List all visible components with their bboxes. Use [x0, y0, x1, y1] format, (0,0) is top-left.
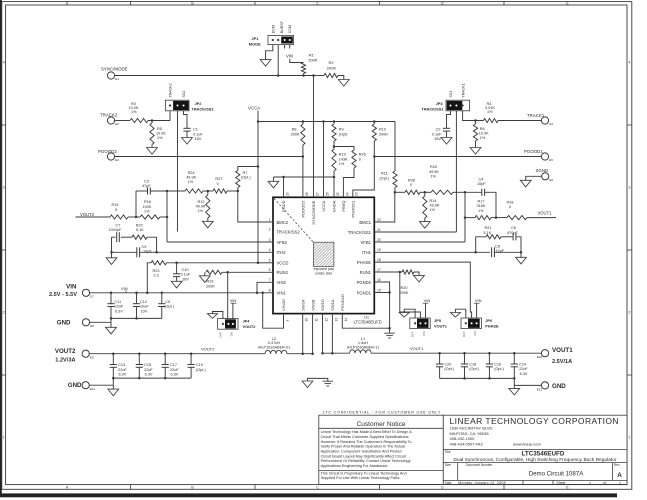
svg-text:10: 10	[305, 318, 309, 322]
svg-text:C3: C3	[144, 180, 149, 184]
svg-text:VOUT2: VOUT2	[243, 324, 257, 329]
svg-text:0.47uH: 0.47uH	[268, 341, 281, 345]
svg-text:TRACK1: TRACK1	[461, 83, 465, 97]
svg-text:C4: C4	[479, 178, 484, 182]
svg-text:200K: 200K	[308, 57, 318, 62]
svg-text:49.9K: 49.9K	[186, 176, 196, 180]
svg-text:1: 1	[589, 481, 591, 485]
svg-text:1: 1	[628, 436, 630, 440]
svg-text:1: 1	[3, 436, 5, 440]
svg-text:R27: R27	[215, 177, 222, 181]
svg-text:R13: R13	[339, 153, 346, 157]
svg-text:SW2A: SW2A	[300, 299, 305, 311]
svg-text:0: 0	[359, 157, 361, 161]
svg-text:17: 17	[377, 268, 381, 272]
svg-text:470pF: 470pF	[507, 231, 518, 235]
svg-text:VCCA: VCCA	[321, 200, 326, 211]
svg-text:(Opt.): (Opt.)	[494, 367, 504, 371]
svg-text:2.5V - 5.5V: 2.5V - 5.5V	[49, 292, 77, 298]
svg-text:143K: 143K	[339, 157, 348, 161]
svg-text:E11: E11	[90, 387, 95, 391]
svg-text:9: 9	[285, 320, 289, 322]
svg-text:VOUT1: VOUT1	[410, 346, 424, 351]
svg-text:VIN: VIN	[286, 54, 293, 59]
svg-text:ITH2: ITH2	[277, 250, 287, 255]
svg-text:3: 3	[269, 238, 271, 242]
svg-text:1%: 1%	[339, 162, 345, 166]
svg-text:408-434-0507 FAX: 408-434-0507 FAX	[450, 441, 484, 446]
svg-text:Circuit Board Layout May Signi: Circuit Board Layout May Significantly A…	[321, 454, 407, 458]
svg-text:ITH1: ITH1	[362, 250, 372, 255]
svg-text:0: 0	[115, 208, 117, 212]
svg-text:408-432-1900: 408-432-1900	[450, 436, 476, 441]
svg-text:3: 3	[3, 186, 5, 190]
svg-text:8: 8	[269, 289, 271, 293]
svg-text:C12: C12	[140, 300, 147, 304]
svg-text:R7: R7	[243, 171, 248, 175]
svg-text:ON: ON	[473, 331, 477, 335]
svg-text:PGOOD2: PGOOD2	[301, 200, 306, 218]
svg-text:R26: R26	[359, 153, 366, 157]
svg-text:IHLP1616ABER-11: IHLP1616ABER-11	[347, 346, 379, 350]
svg-text:22: 22	[377, 218, 381, 222]
svg-text:1.5uH: 1.5uH	[358, 341, 368, 345]
svg-text:PGND2: PGND2	[357, 280, 372, 285]
svg-text:3: 3	[628, 186, 630, 190]
svg-text:TRACK1: TRACK1	[527, 113, 545, 118]
svg-text:E4: E4	[115, 158, 119, 162]
svg-text:OFF: OFF	[411, 331, 415, 337]
svg-text:IHLP1616ABER-01: IHLP1616ABER-01	[258, 346, 291, 350]
svg-text:Supplied For Use With Linear T: Supplied For Use With Linear Technology …	[321, 476, 401, 480]
svg-text:L2: L2	[272, 337, 276, 341]
svg-text:C10: C10	[182, 268, 189, 272]
svg-text:R12: R12	[198, 200, 205, 204]
svg-text:R11: R11	[381, 172, 388, 176]
svg-text:PHASE: PHASE	[357, 260, 371, 265]
svg-text:FREQ: FREQ	[341, 201, 346, 212]
svg-text:26: 26	[325, 192, 329, 196]
svg-text:R9: R9	[339, 128, 344, 132]
svg-text:4: 4	[269, 248, 271, 252]
svg-text:5.1K: 5.1K	[484, 231, 492, 235]
svg-text:TRACK/SS1: TRACK/SS1	[348, 230, 372, 235]
svg-text:VOUT1: VOUT1	[434, 323, 448, 328]
svg-text:SYNC/MODE: SYNC/MODE	[101, 67, 128, 72]
svg-text:16V: 16V	[182, 277, 189, 281]
svg-text:OFF: OFF	[462, 331, 466, 337]
svg-text:C13: C13	[118, 363, 125, 367]
svg-text:316K: 316K	[477, 204, 486, 208]
svg-text:13: 13	[334, 318, 338, 322]
svg-text:1%: 1%	[487, 110, 493, 114]
svg-text:C16: C16	[494, 362, 501, 366]
svg-text:CCM: CCM	[288, 25, 292, 33]
svg-text:49.9K: 49.9K	[429, 170, 439, 174]
svg-text:0.1uF: 0.1uF	[181, 273, 191, 277]
svg-text:R8: R8	[292, 128, 297, 132]
svg-text:25: 25	[336, 192, 340, 196]
svg-text:BURST: BURST	[280, 20, 284, 33]
svg-text:R17: R17	[478, 200, 485, 204]
svg-text:(Opt.): (Opt.)	[380, 176, 390, 180]
svg-text:Application. Component Substit: Application. Component Substitution And …	[321, 450, 402, 454]
svg-text:C14: C14	[519, 362, 526, 366]
svg-text:E3: E3	[549, 122, 553, 126]
svg-text:GND: GND	[57, 319, 71, 326]
svg-text:SYNC/MODE: SYNC/MODE	[311, 200, 316, 225]
svg-text:Applications Engineering For A: Applications Engineering For Assistance.	[321, 464, 389, 468]
svg-text:(Opt.): (Opt.)	[164, 305, 174, 309]
svg-text:C11: C11	[115, 300, 122, 304]
svg-text:GND: GND	[552, 383, 566, 390]
svg-text:28: 28	[305, 192, 309, 196]
svg-text:E12: E12	[537, 387, 543, 391]
svg-text:Document Number: Document Number	[466, 463, 494, 467]
svg-text:TRACK/SS2: TRACK/SS2	[277, 229, 301, 234]
svg-text:VFB2: VFB2	[277, 240, 288, 245]
svg-text:PHASE: PHASE	[485, 323, 499, 328]
svg-text:TRACK/SS1: TRACK/SS1	[421, 106, 444, 111]
svg-text:47pF: 47pF	[142, 184, 151, 188]
svg-text:2: 2	[269, 227, 271, 231]
svg-text:ON: ON	[422, 331, 426, 335]
svg-text:15: 15	[377, 288, 381, 292]
svg-text:E1: E1	[115, 77, 119, 81]
svg-text:PGND1D: PGND1D	[340, 294, 345, 311]
svg-text:C2: C2	[436, 128, 441, 132]
svg-text:VIN2: VIN2	[277, 280, 287, 285]
svg-text:C7: C7	[116, 223, 121, 227]
svg-text:1%: 1%	[157, 136, 163, 140]
svg-text:GNDD: GNDD	[281, 200, 286, 212]
svg-text:10uF: 10uF	[140, 305, 149, 309]
svg-text:L1: L1	[361, 337, 365, 341]
svg-text:Title: Title	[445, 450, 451, 454]
svg-text:24: 24	[345, 192, 349, 196]
svg-text:MODE: MODE	[249, 41, 261, 46]
svg-text:JP5: JP5	[434, 318, 442, 323]
svg-text:R10: R10	[379, 128, 386, 132]
svg-text:Dual Synchronous, Configurable: Dual Synchronous, Configurable, High Swi…	[453, 457, 617, 463]
svg-text:TRACK/SS2: TRACK/SS2	[192, 106, 215, 111]
svg-text:10pF: 10pF	[477, 182, 486, 186]
svg-text:VFB1: VFB1	[361, 240, 372, 245]
svg-text:19: 19	[377, 248, 381, 252]
svg-text:49.9K: 49.9K	[196, 204, 206, 208]
svg-text:6.3V: 6.3V	[171, 373, 179, 377]
svg-text:R25: R25	[430, 165, 437, 169]
svg-text:VOUT1: VOUT1	[538, 210, 553, 215]
svg-text:However, It Remains The Custom: However, It Remains The Customer's Respo…	[321, 440, 412, 444]
svg-text:RUN1: RUN1	[360, 270, 372, 275]
svg-text:BMC2: BMC2	[277, 220, 289, 225]
svg-text:7: 7	[269, 278, 271, 282]
svg-text:12: 12	[324, 318, 328, 322]
svg-text:21: 21	[377, 228, 381, 232]
svg-text:1%: 1%	[188, 180, 194, 184]
svg-text:Performance Or Reliability. Co: Performance Or Reliability. Contact Line…	[321, 459, 411, 463]
svg-text:C5: C5	[165, 300, 170, 304]
svg-text:R23: R23	[153, 269, 160, 273]
svg-text:(Opt.): (Opt.)	[241, 175, 251, 179]
svg-text:R28: R28	[408, 179, 415, 183]
svg-text:(Opt): (Opt)	[339, 133, 348, 137]
svg-text:VIN: VIN	[121, 286, 128, 291]
svg-text:LTC CONFIDENTIAL - FOR CUSTOME: LTC CONFIDENTIAL - FOR CUSTOMER USE ONLY	[323, 411, 441, 415]
svg-text:1: 1	[269, 218, 271, 222]
svg-text:2: 2	[628, 311, 630, 315]
svg-text:SGND: SGND	[536, 168, 549, 173]
svg-text:27: 27	[315, 192, 319, 196]
svg-text:Customer Notice: Customer Notice	[356, 421, 405, 428]
svg-text:VOUT2: VOUT2	[80, 212, 95, 217]
svg-text:PGOOD2: PGOOD2	[98, 149, 117, 154]
svg-text:C9: C9	[142, 245, 147, 249]
svg-text:VCCD: VCCD	[277, 261, 289, 266]
svg-text:1.2V/3A: 1.2V/3A	[55, 357, 75, 363]
svg-text:ON: ON	[230, 332, 234, 336]
svg-text:This Circuit Is Proprietary To: This Circuit Is Proprietary To Linear Te…	[321, 471, 407, 475]
svg-text:0: 0	[217, 182, 219, 186]
svg-text:R6: R6	[480, 127, 485, 131]
svg-text:0.1uF: 0.1uF	[432, 132, 442, 136]
svg-text:DCM: DCM	[272, 25, 276, 33]
svg-text:LINEAR TECHNOLOGY CORPORATION: LINEAR TECHNOLOGY CORPORATION	[450, 416, 619, 426]
svg-text:11: 11	[315, 318, 319, 322]
svg-text:16: 16	[377, 278, 381, 282]
svg-text:E8: E8	[90, 324, 94, 328]
svg-text:Monday, January 12, 2009: Monday, January 12, 2009	[458, 481, 506, 485]
svg-text:10.0K: 10.0K	[156, 132, 166, 136]
svg-text:VIN1: VIN1	[277, 291, 287, 296]
svg-text:5: 5	[269, 259, 271, 263]
svg-text:VIN: VIN	[424, 298, 431, 303]
svg-text:R5: R5	[157, 127, 162, 131]
svg-text:SS1: SS1	[449, 91, 453, 98]
svg-text:10V: 10V	[141, 309, 148, 313]
svg-text:LTC3546EUFD: LTC3546EUFD	[522, 451, 565, 458]
svg-text:200K: 200K	[379, 133, 388, 137]
svg-text:1%: 1%	[131, 110, 137, 114]
svg-text:16V: 16V	[195, 137, 202, 141]
svg-text:of: of	[603, 481, 606, 485]
svg-text:RUN2: RUN2	[277, 270, 289, 275]
svg-text:29: 29	[285, 192, 289, 196]
svg-text:E9: E9	[90, 355, 94, 359]
svg-text:1%: 1%	[480, 136, 486, 140]
svg-text:10.0K: 10.0K	[479, 132, 489, 136]
svg-text:VOUT2: VOUT2	[201, 347, 215, 352]
svg-text:E7: E7	[90, 295, 94, 299]
svg-text:E2: E2	[115, 122, 119, 126]
svg-text:Date:: Date:	[445, 481, 453, 485]
svg-text:200K: 200K	[400, 291, 409, 295]
svg-text:SS2: SS2	[182, 91, 186, 98]
svg-text:0: 0	[509, 205, 511, 209]
svg-text:6.3V: 6.3V	[115, 309, 123, 313]
svg-text:22uF: 22uF	[144, 368, 153, 372]
svg-text:10pF: 10pF	[496, 249, 505, 253]
svg-text:22uF: 22uF	[170, 368, 179, 372]
svg-text:VIN: VIN	[475, 298, 482, 303]
svg-text:PGOOD1: PGOOD1	[524, 149, 543, 154]
svg-text:1630 McCARTHY BLVD.: 1630 McCARTHY BLVD.	[450, 426, 494, 431]
svg-text:R20: R20	[401, 286, 408, 290]
svg-text:1%: 1%	[430, 208, 436, 212]
svg-text:R21: R21	[485, 226, 492, 230]
svg-text:SW2B: SW2B	[310, 299, 315, 311]
svg-text:6: 6	[269, 268, 271, 272]
svg-text:22uF: 22uF	[519, 367, 528, 371]
svg-text:VIN: VIN	[230, 298, 237, 303]
svg-text:R15: R15	[112, 203, 119, 207]
svg-text:PGOOD1: PGOOD1	[351, 200, 356, 218]
svg-text:R16: R16	[144, 200, 151, 204]
svg-text:(Opt.): (Opt.)	[469, 367, 479, 371]
svg-text:Verify Proper And Reliable Ope: Verify Proper And Reliable Operation In …	[321, 445, 405, 449]
svg-text:20: 20	[377, 238, 381, 242]
svg-text:1: 1	[619, 481, 621, 485]
svg-text:(Opt.): (Opt.)	[444, 367, 454, 371]
svg-text:R19: R19	[207, 280, 214, 284]
svg-text:E6: E6	[549, 178, 553, 182]
svg-text:Circuit That Meets Customer-Su: Circuit That Meets Customer-Supplied Spe…	[321, 435, 410, 439]
svg-text:SW1A: SW1A	[330, 299, 335, 311]
svg-text:E5: E5	[549, 158, 553, 162]
svg-text:6.3V: 6.3V	[520, 372, 528, 376]
svg-text:VIN1D: VIN1D	[281, 299, 286, 311]
svg-text:C20: C20	[444, 362, 451, 366]
svg-text:1%: 1%	[431, 174, 437, 178]
svg-text:solder side: solder side	[315, 271, 332, 275]
svg-text:C1: C1	[193, 128, 198, 132]
svg-text:GNDA: GNDA	[332, 200, 337, 212]
svg-text:4: 4	[3, 61, 5, 65]
svg-text:C15: C15	[144, 363, 151, 367]
svg-text:SW1D: SW1D	[320, 299, 325, 311]
svg-text:1%: 1%	[198, 209, 204, 213]
svg-text:2: 2	[3, 311, 5, 315]
svg-text:R22: R22	[136, 223, 143, 227]
svg-text:6.3V: 6.3V	[145, 373, 153, 377]
svg-text:200K: 200K	[291, 133, 300, 137]
svg-text:VOUT2: VOUT2	[55, 348, 76, 355]
svg-text:JP6: JP6	[485, 318, 493, 323]
svg-text:JP4: JP4	[243, 319, 251, 324]
svg-text:Sheet: Sheet	[557, 481, 566, 485]
svg-text:www.linear.com: www.linear.com	[513, 441, 541, 446]
svg-text:Size: Size	[445, 463, 451, 467]
svg-text:GND: GND	[68, 382, 82, 389]
svg-text:10pF: 10pF	[143, 249, 152, 253]
svg-text:22uF: 22uF	[118, 368, 127, 372]
svg-text:200K: 200K	[206, 284, 215, 288]
svg-text:14: 14	[344, 318, 348, 322]
svg-text:0: 0	[410, 183, 412, 187]
svg-text:100K: 100K	[143, 205, 152, 209]
svg-text:22uF: 22uF	[115, 305, 124, 309]
svg-text:(Opt.): (Opt.)	[196, 368, 206, 372]
svg-text:C8: C8	[495, 244, 500, 248]
svg-text:C6: C6	[511, 226, 516, 230]
svg-text:Rev: Rev	[614, 463, 620, 467]
svg-text:1000pF: 1000pF	[109, 228, 123, 232]
svg-text:C19: C19	[196, 363, 203, 367]
svg-text:TRACK2: TRACK2	[169, 83, 173, 97]
svg-text:E10: E10	[537, 355, 543, 359]
svg-text:PGND1: PGND1	[357, 290, 372, 295]
svg-text:5.1K: 5.1K	[136, 228, 144, 232]
svg-text:200K: 200K	[327, 65, 337, 70]
svg-text:C17: C17	[170, 363, 177, 367]
svg-text:OFF: OFF	[219, 332, 223, 338]
svg-text:Demo Circuit 1087A: Demo Circuit 1087A	[529, 471, 584, 478]
svg-text:R14: R14	[430, 199, 437, 203]
svg-text:23: 23	[355, 192, 359, 196]
svg-text:MILPITAS, CA, 95035: MILPITAS, CA, 95035	[450, 431, 490, 436]
svg-text:1%: 1%	[478, 209, 484, 213]
svg-text:0.1uF: 0.1uF	[193, 132, 203, 136]
svg-text:4: 4	[628, 61, 630, 65]
svg-text:VOUT1: VOUT1	[552, 347, 573, 354]
svg-text:18: 18	[377, 258, 381, 262]
svg-text:6.3V: 6.3V	[119, 373, 127, 377]
svg-text:Linear Technology Has Made A B: Linear Technology Has Made A Best Effort…	[321, 430, 413, 434]
svg-text:2.5V/1A: 2.5V/1A	[552, 359, 572, 365]
svg-text:R18: R18	[507, 200, 514, 204]
svg-text:C18: C18	[469, 362, 476, 366]
svg-text:2.2: 2.2	[154, 274, 159, 278]
svg-text:A: A	[617, 472, 622, 479]
svg-text:TRACK2: TRACK2	[100, 113, 118, 118]
svg-text:LTC3546EUFD: LTC3546EUFD	[354, 320, 382, 325]
svg-text:VCCA: VCCA	[248, 106, 260, 111]
svg-text:VIN: VIN	[66, 283, 77, 290]
svg-text:R24: R24	[188, 171, 195, 175]
svg-text:49.9K: 49.9K	[430, 203, 440, 207]
svg-text:16V: 16V	[434, 137, 441, 141]
svg-text:1%: 1%	[144, 209, 150, 213]
svg-text:BMC1: BMC1	[359, 220, 371, 225]
